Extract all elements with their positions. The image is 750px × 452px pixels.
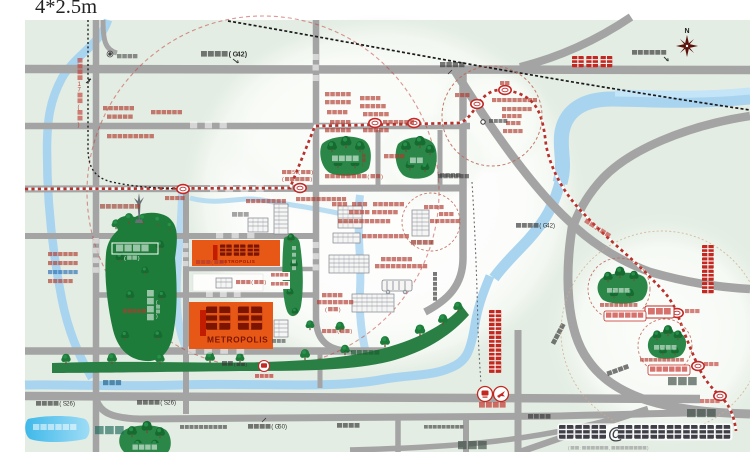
svg-text:): ) bbox=[138, 256, 140, 262]
svg-text:(: ( bbox=[124, 256, 126, 262]
svg-text:): ) bbox=[310, 177, 312, 183]
svg-text:): ) bbox=[553, 223, 555, 230]
svg-text:(: ( bbox=[539, 223, 541, 230]
svg-text::: : bbox=[580, 446, 581, 451]
svg-text:): ) bbox=[339, 307, 341, 313]
svg-text:(: ( bbox=[160, 400, 162, 407]
svg-text:(: ( bbox=[367, 174, 369, 180]
svg-text:): ) bbox=[264, 280, 266, 286]
svg-text:): ) bbox=[381, 174, 383, 180]
svg-text:): ) bbox=[311, 170, 313, 176]
svg-text:): ) bbox=[73, 401, 75, 408]
svg-text:(: ( bbox=[211, 260, 213, 266]
svg-text:(: ( bbox=[251, 280, 253, 286]
svg-text:,: , bbox=[609, 446, 610, 451]
svg-text:(: ( bbox=[337, 329, 339, 335]
svg-text:): ) bbox=[78, 121, 80, 128]
svg-text:): ) bbox=[285, 424, 287, 431]
svg-text:): ) bbox=[224, 260, 226, 266]
svg-text:): ) bbox=[350, 329, 352, 335]
svg-text:(: ( bbox=[59, 401, 61, 408]
svg-text:(: ( bbox=[298, 170, 300, 176]
svg-text:): ) bbox=[174, 400, 176, 407]
svg-text:(: ( bbox=[282, 177, 284, 183]
svg-text:(: ( bbox=[325, 307, 327, 313]
svg-text:N: N bbox=[684, 28, 689, 35]
svg-text:METROPOLIS: METROPOLIS bbox=[207, 335, 268, 345]
svg-text:(: ( bbox=[271, 424, 273, 431]
svg-text:(: ( bbox=[78, 104, 80, 111]
